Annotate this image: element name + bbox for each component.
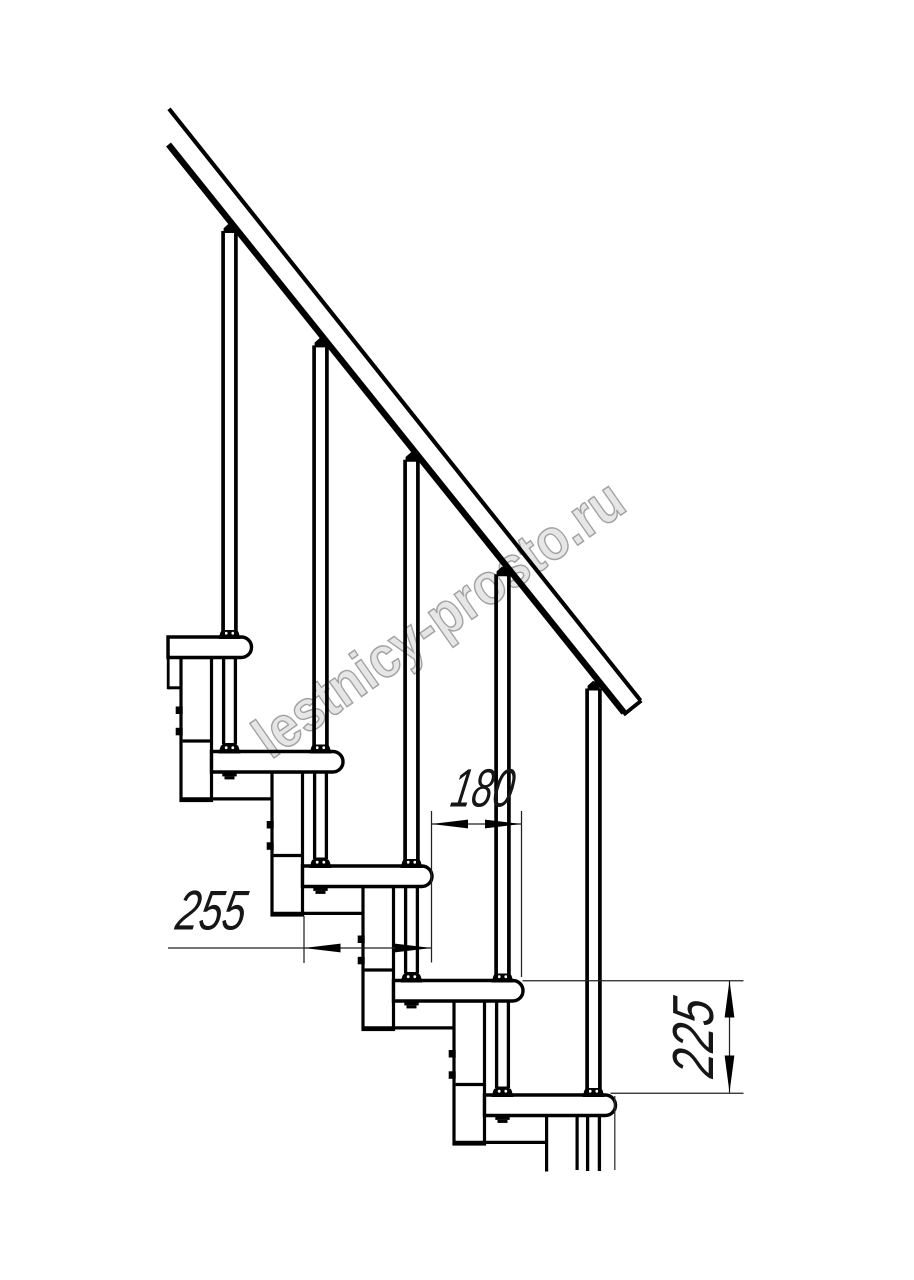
svg-text:255: 255 (171, 879, 252, 942)
svg-text:225: 225 (661, 993, 726, 1083)
svg-text:180: 180 (447, 758, 520, 819)
